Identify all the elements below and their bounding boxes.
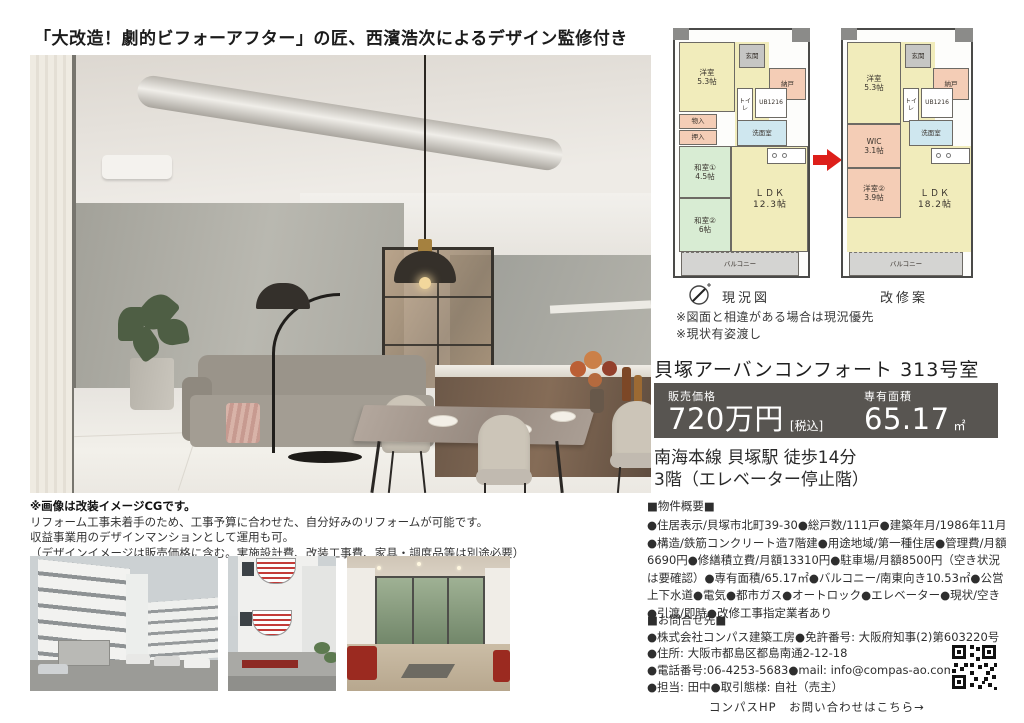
overview-heading: ■物件概要■: [647, 498, 1007, 515]
room-western1: 洋室 5.3帖: [679, 42, 735, 112]
downlight: [457, 566, 461, 570]
cg-note: ※画像は改装イメージCGです。 リフォーム工事未着手のため、工事予算に合わせた、…: [30, 499, 630, 561]
price-box: 販売価格 720万円 [税込] 専有面積 65.17 ㎡: [654, 383, 998, 438]
flower: [570, 361, 586, 377]
bottle: [622, 367, 631, 401]
dining-chair-seat: [610, 453, 651, 468]
red-sofa: [347, 646, 377, 680]
flyer-page: 「大改造！劇的ビフォーアフター」の匠、西濱浩次によるデザイン監修付き: [0, 0, 1024, 723]
lobby-photo: [347, 556, 510, 691]
building-name-sign: [242, 660, 298, 668]
car: [184, 658, 210, 668]
cg-note-line: 収益事業用のデザインマンションとして運用も可。: [30, 530, 630, 546]
room-entrance: 玄関: [905, 44, 931, 68]
bush: [324, 652, 336, 663]
exterior-photo-parking: [30, 556, 218, 691]
property-overview: ■物件概要■ ●住居表示/貝塚市北町39-30●総戸数/111戸●建築年月/19…: [647, 498, 1007, 622]
air-conditioner: [102, 155, 172, 179]
plant-pot: [130, 358, 174, 410]
chair-leg: [524, 483, 526, 493]
lobby-wall: [485, 568, 510, 650]
exterior-photo-entrance-sign: [228, 556, 336, 691]
balcony: バルコニー: [681, 252, 799, 276]
main-interior-photo: [30, 55, 651, 493]
price-column: 販売価格 720万円 [税込]: [654, 383, 850, 438]
flower: [588, 373, 602, 387]
tax-note: [税込]: [790, 417, 823, 434]
ldk-label: ＬＤＫ 18.2帖: [901, 180, 969, 220]
kitchen-unit: [931, 148, 970, 164]
room-washroom: 洗面室: [909, 120, 953, 146]
room-bath: UB1216: [921, 88, 953, 118]
plate: [428, 415, 458, 427]
room-entrance: 玄関: [739, 44, 765, 68]
flower: [584, 351, 602, 369]
qr-code: [950, 643, 998, 691]
ldk-label: ＬＤＫ 12.3帖: [735, 180, 805, 220]
cg-note-line: リフォーム工事未着手のため、工事予算に合わせた、自分好みのリフォームが可能です。: [30, 515, 630, 531]
renovation-arrow-icon: [813, 149, 843, 171]
red-sofa: [493, 650, 510, 682]
price-value: 720万円: [668, 405, 784, 434]
floor-line: 3階（エレベーター停止階）: [654, 465, 869, 490]
room-japanese1: 和室① 4.5帖: [679, 146, 731, 198]
room-wic: WIC 3.1帖: [847, 124, 901, 168]
caption-current-plan: 現況図: [722, 287, 770, 306]
cg-note-title: ※画像は改装イメージCGです。: [30, 499, 630, 515]
stair-tower: [126, 574, 148, 666]
area-column: 専有面積 65.17 ㎡: [850, 383, 966, 438]
dining-chair: [612, 401, 651, 461]
bottle: [634, 375, 642, 403]
car: [154, 656, 180, 666]
arc-floor-lamp-base: [288, 451, 362, 463]
floor-mat: [401, 664, 455, 678]
room-western1: 洋室 5.3帖: [847, 42, 901, 124]
low-structure: [58, 640, 110, 666]
room-closet: 押入: [679, 130, 717, 145]
downlight: [377, 566, 381, 570]
plate: [550, 411, 576, 422]
balcony: バルコニー: [849, 252, 963, 276]
apartment-building: [148, 598, 218, 663]
wall-block: [792, 28, 810, 42]
property-name: 貝塚アーバンコンフォート 313号室: [654, 355, 1014, 382]
caption-renovated-plan: 改修案: [880, 287, 928, 306]
lobby-wall: [347, 568, 375, 648]
compass-icon: [688, 282, 712, 306]
wall-block: [955, 28, 973, 42]
wall-block: [841, 28, 857, 40]
car: [126, 654, 150, 664]
plan-note: ※現状有姿渡し: [676, 325, 762, 342]
entrance-glass-wall: [375, 576, 485, 646]
room-toilet: トイレ: [737, 88, 753, 122]
kitchen-unit: [767, 148, 806, 164]
room-bath: UB1216: [755, 88, 787, 118]
area-unit: ㎡: [954, 417, 966, 434]
room-western2: 洋室② 3.9帖: [847, 168, 901, 218]
wall-block: [673, 28, 689, 40]
page-title: 「大改造！劇的ビフォーアフター」の匠、西濱浩次によるデザイン監修付き: [34, 24, 664, 49]
driveway: [228, 676, 336, 691]
hp-link-line: コンパスHP お問い合わせはこちら→: [647, 699, 1007, 716]
room-closet: 物入: [679, 114, 717, 129]
flower: [602, 361, 617, 376]
area-value: 65.17: [864, 405, 950, 434]
window: [240, 612, 252, 626]
downlight: [417, 562, 421, 566]
flower-vase: [590, 389, 604, 413]
pendant-lamp-bulb: [419, 277, 431, 289]
room-washroom: 洗面室: [737, 120, 787, 146]
floorplan-renovated: 洋室 5.3帖 玄関 納戸 トイレ UB1216 洗面室 WIC 3.1帖 洋室…: [841, 28, 973, 278]
window: [242, 562, 254, 576]
room-japanese2: 和室② 6帖: [679, 198, 731, 252]
chair-leg: [484, 483, 486, 493]
overview-body: ●住居表示/貝塚市北町39-30●総戸数/111戸●建築年月/1986年11月●…: [647, 517, 1007, 622]
floorplan-current: 洋室 5.3帖 玄関 納戸 トイレ UB1216 洗面室 物入 押入 和室① 4…: [673, 28, 810, 278]
plan-note: ※図面と相違がある場合は現況優先: [676, 308, 874, 325]
blanket: [226, 403, 260, 443]
pendant-lamp-cord: [424, 55, 426, 245]
room-toilet: トイレ: [903, 88, 919, 122]
window-curtain: [30, 55, 76, 493]
contact-heading: ■お問合せ先■: [647, 612, 1007, 629]
car: [38, 664, 68, 674]
